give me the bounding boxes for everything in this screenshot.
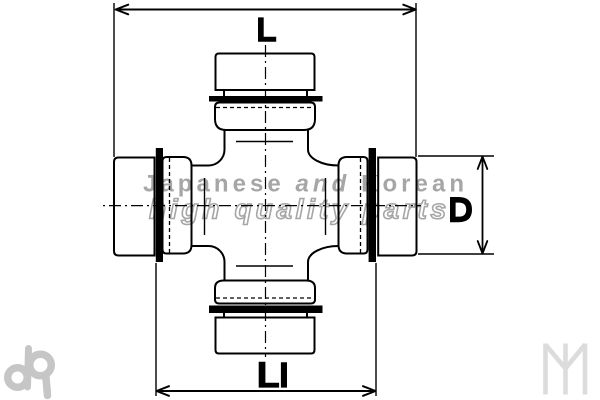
svg-text:high quality parts: high quality parts (149, 194, 450, 225)
